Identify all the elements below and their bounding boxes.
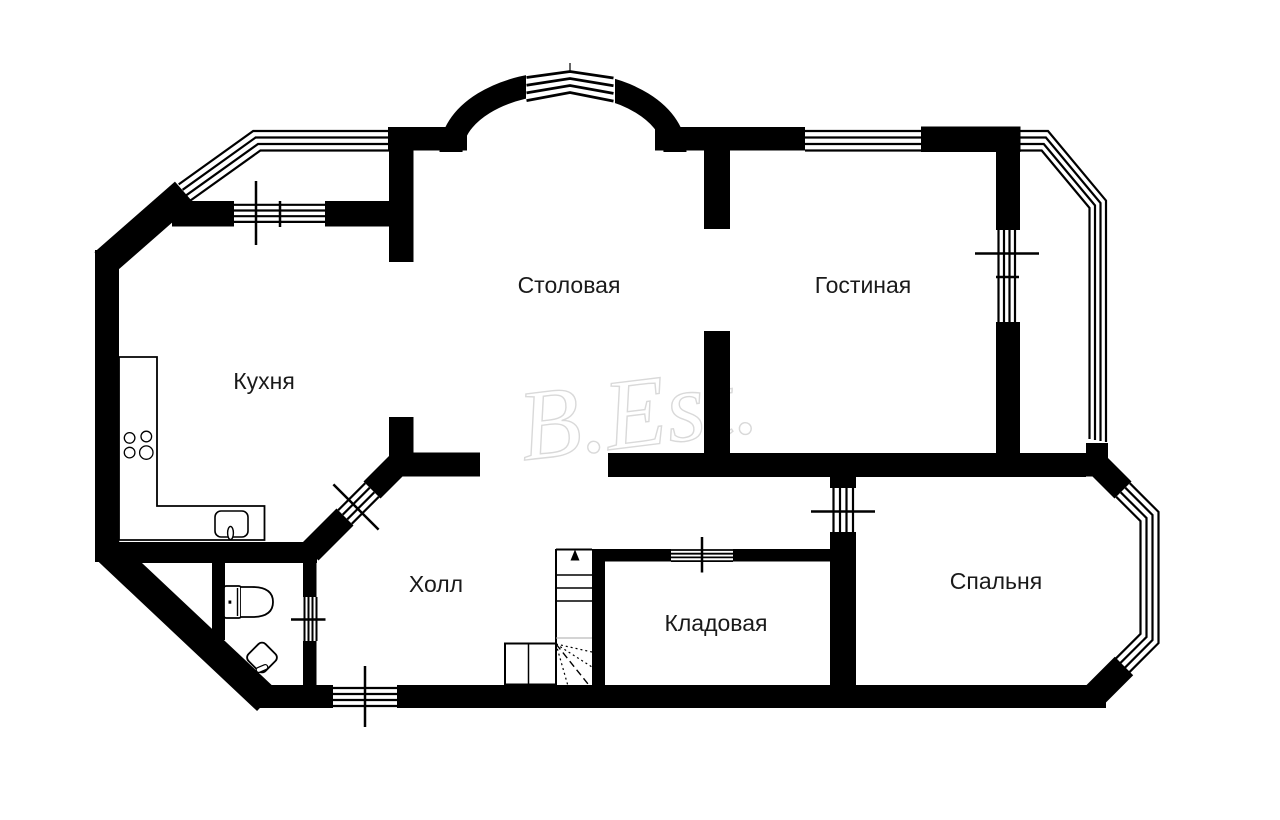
svg-text:Кладовая: Кладовая xyxy=(664,610,767,636)
svg-text:Гостиная: Гостиная xyxy=(815,272,912,298)
svg-text:Холл: Холл xyxy=(409,571,463,597)
svg-text:Столовая: Столовая xyxy=(518,272,621,298)
svg-text:Спальня: Спальня xyxy=(950,568,1042,594)
svg-text:Кухня: Кухня xyxy=(233,368,295,394)
